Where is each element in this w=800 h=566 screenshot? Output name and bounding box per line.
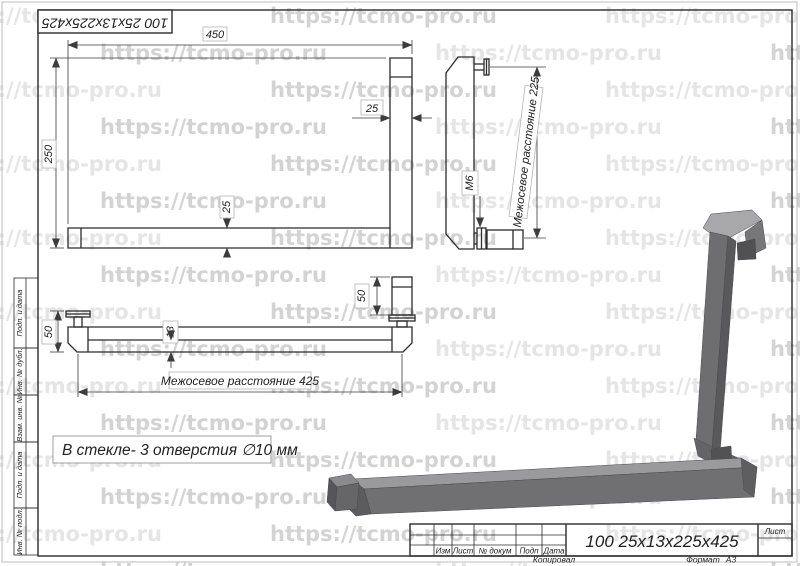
glass-note: В стекле- 3 отверстия ∅10 мм [53, 436, 298, 463]
title-col-izm: Изм [436, 547, 451, 556]
side-stamp-label: Инв. № подл. [15, 508, 24, 555]
designation-stamp-text: 100 25x13x225x425 [42, 15, 168, 31]
side-stamp-boxes: Подп. и датаИнв. № дубл.Взам. инв. №Подп… [14, 278, 38, 555]
dim-25-width: 25 [365, 103, 379, 115]
side-view: Межосевое расстояние 225 М6 [446, 57, 546, 249]
designation-stamp-rotated: 100 25x13x225x425 [38, 10, 172, 33]
title-block: Изм Лист № докум Подп Дата 100 25x13x225… [410, 524, 792, 556]
dim-50-left: 50 [43, 325, 55, 338]
dim-50-right: 50 [356, 289, 368, 302]
drawing-sheet: https://tcmo-pro.ruhttps://tcmo-pro.ruht… [0, 0, 800, 566]
footer-format-value: А3 [725, 555, 737, 565]
glass-note-text: В стекле- 3 отверстия ∅10 мм [62, 442, 298, 459]
title-col-list: Лист [452, 547, 474, 556]
thread-label-m6: М6 [464, 174, 476, 190]
technical-drawing: 100 25x13x225x425 Подп. и датаИнв. № дуб… [0, 0, 800, 566]
side-stamp-label: Подп. и дата [15, 290, 24, 337]
footer-copied: Копировал [533, 555, 575, 565]
side-stamp-label: Подп. и дата [15, 452, 24, 499]
dim-250: 250 [43, 144, 55, 164]
footer-format-label: Формат [686, 555, 720, 565]
side-stamp-label: Взам. инв. № [15, 395, 24, 441]
dim-13: 13 [164, 326, 176, 338]
title-sheet-label: Лист [764, 527, 786, 536]
dim-450: 450 [206, 29, 225, 41]
front-view: 450 250 25 25 [42, 27, 432, 256]
dim-axes-425: Межосевое расстояние 425 [161, 374, 319, 388]
side-stamp-box: Подп. и дата [14, 278, 38, 348]
side-stamp-box: Инв. № дубл. [14, 348, 38, 395]
side-stamp-box: Подп. и дата [14, 442, 38, 508]
side-stamp-label: Инв. № дубл. [15, 348, 24, 394]
side-stamp-box: Взам. инв. № [14, 395, 38, 442]
title-col-doc: № докум [478, 547, 512, 556]
top-view: 50 50 13 Межосевое расстояние 425 [42, 277, 415, 397]
side-stamp-box: Инв. № подл. [14, 508, 38, 555]
title-designation: 100 25x13x225x425 [585, 532, 739, 551]
3d-view [327, 210, 766, 516]
dim-25-thickness: 25 [221, 200, 233, 214]
